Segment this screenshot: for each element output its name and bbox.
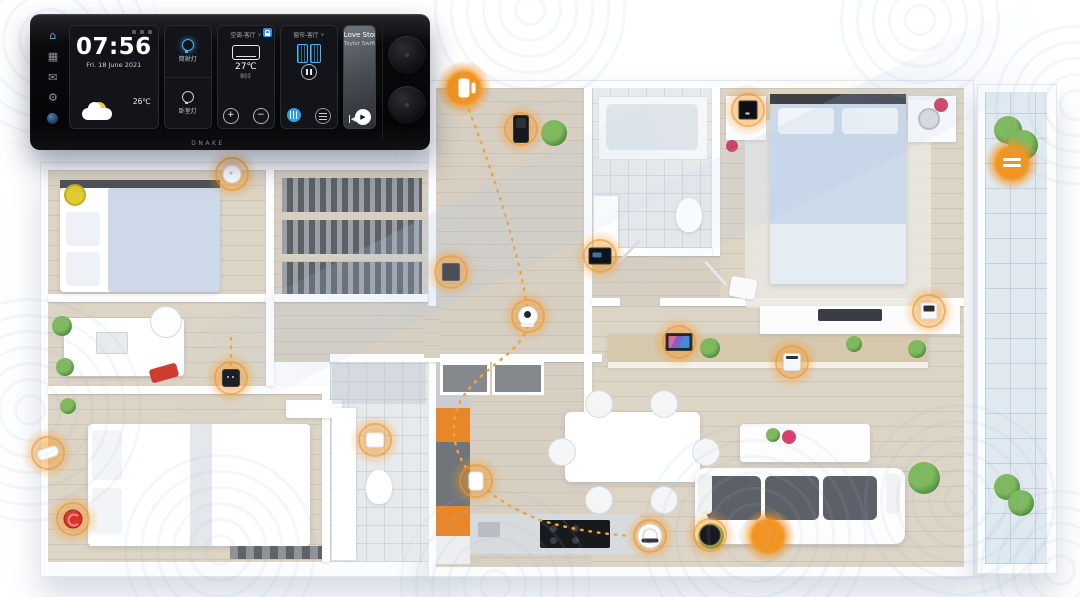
headboard xyxy=(60,180,220,188)
chair xyxy=(548,438,576,466)
white-sensor-device-icon xyxy=(366,433,384,448)
globe-icon[interactable] xyxy=(47,113,58,124)
light-button-bedroom[interactable]: 卧室灯 xyxy=(165,77,211,129)
wall xyxy=(48,294,266,302)
kitchen-cabinet-orange xyxy=(436,408,470,442)
ac-plus-button[interactable]: + xyxy=(223,108,239,124)
kitchen-cabinet-orange xyxy=(436,506,470,536)
wall xyxy=(274,294,428,302)
music-card[interactable]: Love Story Taylor Swift ◀ ▶ xyxy=(343,25,376,129)
burner xyxy=(550,525,557,532)
clock-card: 07:56 Fri. 18 June 2021 26℃ xyxy=(69,25,159,129)
round-sensor-device-icon xyxy=(223,165,242,184)
panel-sidebar: ⌂ ▦ ✉ ⚙ xyxy=(42,25,64,129)
kitchen-counter xyxy=(436,536,470,564)
monitor xyxy=(818,309,882,321)
chevron-down-icon: ∨ xyxy=(258,32,262,38)
panel-seam xyxy=(382,24,383,140)
outdoor-temperature: 26℃ xyxy=(133,97,151,106)
dining-table xyxy=(565,412,700,482)
curtain-header-label: 窗帘-客厅 xyxy=(293,30,318,39)
clock-time: 07:56 xyxy=(70,35,158,59)
cube-device-icon xyxy=(783,353,801,371)
plant xyxy=(908,462,940,494)
chair xyxy=(692,438,720,466)
toilet xyxy=(366,470,392,504)
shower xyxy=(332,364,426,404)
speaker-round xyxy=(918,108,940,130)
sofa-pillow xyxy=(886,474,900,514)
burner xyxy=(572,525,579,532)
irrigation-device-icon xyxy=(1003,154,1021,172)
music-title: Love Story xyxy=(344,31,375,39)
dresser xyxy=(230,546,322,559)
wall xyxy=(330,354,602,362)
closet-shelf xyxy=(282,220,422,254)
weather-icon xyxy=(82,102,116,122)
burner xyxy=(550,537,557,544)
ac-temperature: 27℃ xyxy=(218,62,274,72)
pillow xyxy=(778,108,834,134)
wall xyxy=(266,170,274,302)
burner xyxy=(572,537,579,544)
ac-minus-button[interactable]: − xyxy=(253,108,269,124)
apps-icon[interactable]: ▦ xyxy=(48,51,58,62)
headboard xyxy=(770,94,906,104)
doorway xyxy=(424,306,440,358)
bulb-icon xyxy=(182,39,194,51)
gateway-device-icon xyxy=(921,303,938,320)
laptop xyxy=(96,332,128,354)
music-artist: Taylor Swift xyxy=(344,41,375,47)
round-speaker-device-icon xyxy=(700,525,721,546)
plant xyxy=(766,428,780,442)
chair xyxy=(650,390,678,418)
wall xyxy=(712,88,720,256)
ac-header-label: 空调-客厅 xyxy=(230,30,255,39)
plant xyxy=(52,316,72,336)
wall xyxy=(592,298,620,306)
pillow xyxy=(842,108,898,134)
lights-card: 筒射灯 卧室灯 xyxy=(164,25,212,129)
door-sensor-device-icon xyxy=(459,79,470,98)
socket-device-icon xyxy=(222,369,240,387)
chair xyxy=(585,390,613,418)
light-label: 筒射灯 xyxy=(179,54,197,63)
sofa-cushion xyxy=(823,476,877,520)
plant xyxy=(60,398,76,414)
flowers xyxy=(782,430,796,444)
office-chair xyxy=(150,306,182,338)
flowers xyxy=(726,140,738,152)
home-icon[interactable]: ⌂ xyxy=(49,30,56,41)
screen-panel-device-icon xyxy=(589,248,612,265)
pillow xyxy=(92,430,122,480)
mail-icon[interactable]: ✉ xyxy=(48,72,57,83)
red-button-device-icon xyxy=(64,510,83,529)
terrace-plant xyxy=(1008,490,1034,516)
settings-icon[interactable]: ⚙ xyxy=(48,92,58,103)
table-gray xyxy=(440,362,490,395)
smart-panel-device: ⌂ ▦ ✉ ⚙ 07:56 Fri. 18 June 2021 26℃ 筒射灯 xyxy=(30,14,430,150)
bedside-lamp xyxy=(64,184,86,206)
plant xyxy=(908,340,926,358)
tablet-device-icon xyxy=(666,333,693,351)
panel-screen: ⌂ ▦ ✉ ⚙ 07:56 Fri. 18 June 2021 26℃ 筒射灯 xyxy=(42,25,376,129)
flowers xyxy=(934,98,948,112)
lock-icon xyxy=(263,28,272,37)
ac-card: 空调-客厅 ∨ 27℃ 制冷 + − xyxy=(217,25,275,129)
sink xyxy=(478,522,500,537)
wall xyxy=(266,302,274,386)
camera-device-icon xyxy=(518,306,538,326)
clock-date: Fri. 18 June 2021 xyxy=(70,61,158,69)
duvet xyxy=(108,188,220,292)
pillow xyxy=(66,212,100,246)
island-table xyxy=(740,424,870,462)
wall xyxy=(322,394,330,562)
plant xyxy=(846,336,862,352)
smart-home-scene: ⌂ ▦ ✉ ⚙ 07:56 Fri. 18 June 2021 26℃ 筒射灯 xyxy=(0,0,1080,597)
bench xyxy=(728,276,757,300)
pillow xyxy=(66,252,100,286)
hotspot-glow xyxy=(741,509,795,563)
switch-device-icon xyxy=(442,263,460,281)
white-detector-device-icon xyxy=(469,472,484,491)
blanket xyxy=(770,224,906,284)
blanket xyxy=(190,424,212,546)
curtain-card: 窗帘-客厅 ∨ xyxy=(280,25,338,129)
play-button[interactable]: ▶ xyxy=(355,109,371,125)
chevron-down-icon: ∨ xyxy=(321,32,325,38)
status-icons xyxy=(70,26,158,34)
wall xyxy=(48,386,330,394)
curtain-pause-button[interactable] xyxy=(301,64,317,80)
physical-button-bottom[interactable] xyxy=(388,86,426,124)
closet-shelf xyxy=(282,178,422,212)
bathtub-basin xyxy=(606,104,698,150)
table-gray xyxy=(492,362,544,395)
closet-shelf xyxy=(282,262,422,294)
ac-unit-icon xyxy=(232,45,260,60)
vacuum-device-icon xyxy=(638,524,663,549)
intercom-device-icon xyxy=(513,115,529,143)
brand-logo: DNAKE xyxy=(30,140,386,147)
curtain-open-button[interactable] xyxy=(287,108,301,122)
toilet xyxy=(676,198,702,232)
curtain-selector[interactable]: 窗帘-客厅 ∨ xyxy=(281,26,337,39)
chair xyxy=(585,486,613,514)
plant xyxy=(56,358,74,376)
corridor-left xyxy=(266,302,428,362)
physical-button-top[interactable] xyxy=(388,36,426,74)
ac-mode: 制冷 xyxy=(218,72,274,80)
bulb-icon xyxy=(182,91,194,103)
black-panel-device-icon xyxy=(739,101,758,120)
light-label: 卧室灯 xyxy=(179,106,197,115)
light-button-spotlight[interactable]: 筒射灯 xyxy=(165,26,211,77)
blinds-button[interactable] xyxy=(315,108,331,124)
curtain-icon xyxy=(297,44,321,61)
